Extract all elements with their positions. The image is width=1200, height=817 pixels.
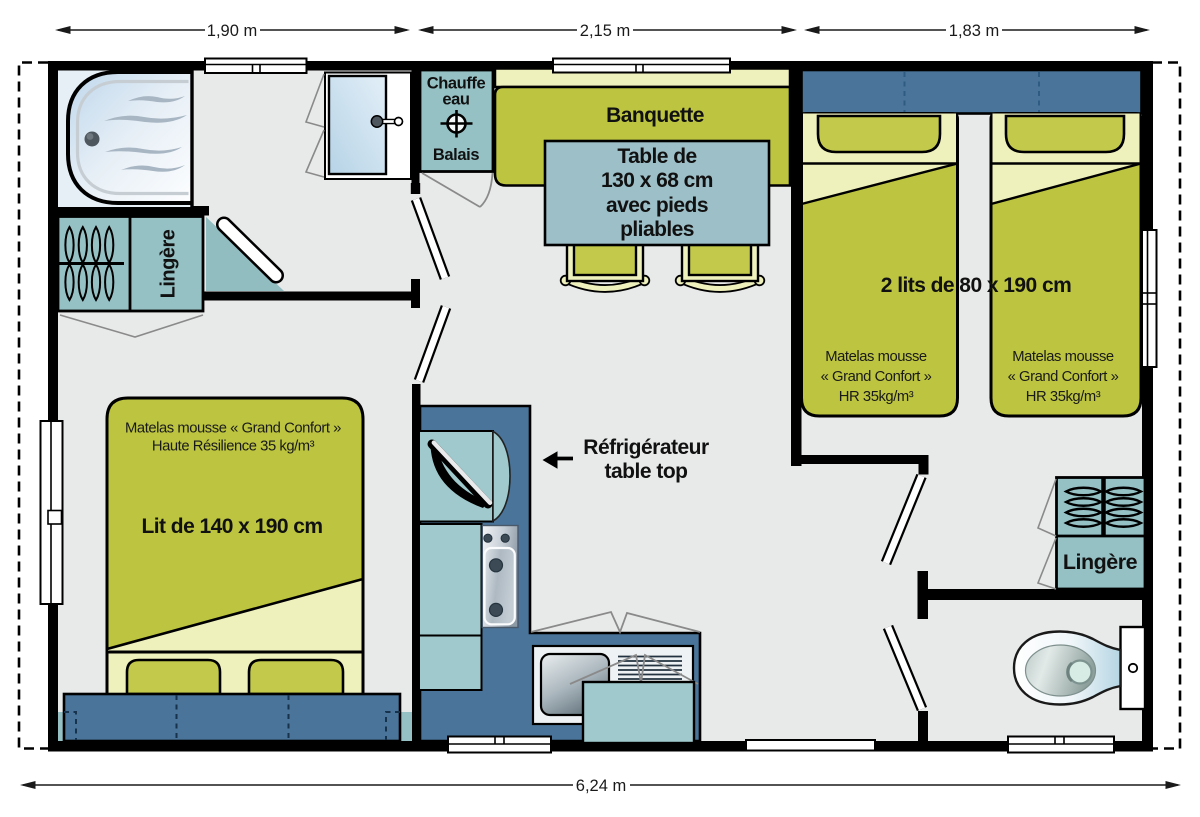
svg-text:Matelas mousse « Grand Confort: Matelas mousse « Grand Confort » xyxy=(125,421,341,437)
svg-text:Matelas mousse: Matelas mousse xyxy=(825,349,927,365)
svg-text:« Grand Confort »: « Grand Confort » xyxy=(821,369,932,385)
svg-text:HR 35kg/m³: HR 35kg/m³ xyxy=(839,389,914,405)
svg-text:Balais: Balais xyxy=(433,146,479,164)
svg-text:Lingère: Lingère xyxy=(157,229,179,298)
svg-text:Réfrigérateur: Réfrigérateur xyxy=(583,436,709,459)
svg-text:Table de: Table de xyxy=(617,145,696,168)
svg-text:2,15 m: 2,15 m xyxy=(580,22,630,40)
svg-text:6,24 m: 6,24 m xyxy=(576,777,626,795)
svg-text:avec pieds: avec pieds xyxy=(606,194,708,217)
svg-text:2 lits de 80 x 190 cm: 2 lits de 80 x 190 cm xyxy=(881,274,1071,297)
svg-text:Matelas mousse: Matelas mousse xyxy=(1012,349,1114,365)
svg-text:130 x 68 cm: 130 x 68 cm xyxy=(601,169,713,192)
svg-text:« Grand Confort »: « Grand Confort » xyxy=(1008,369,1119,385)
svg-text:1,90 m: 1,90 m xyxy=(207,22,257,40)
svg-text:Haute Résilience 35 kg/m³: Haute Résilience 35 kg/m³ xyxy=(152,439,315,455)
svg-text:table top: table top xyxy=(605,460,688,483)
svg-text:eau: eau xyxy=(442,91,469,109)
svg-text:pliables: pliables xyxy=(620,218,694,241)
svg-text:Lingère: Lingère xyxy=(1063,550,1138,574)
svg-text:Banquette: Banquette xyxy=(606,104,704,127)
svg-text:HR 35kg/m³: HR 35kg/m³ xyxy=(1026,389,1101,405)
svg-text:1,83 m: 1,83 m xyxy=(949,22,999,40)
svg-text:Lit de 140 x 190 cm: Lit de 140 x 190 cm xyxy=(142,515,323,538)
